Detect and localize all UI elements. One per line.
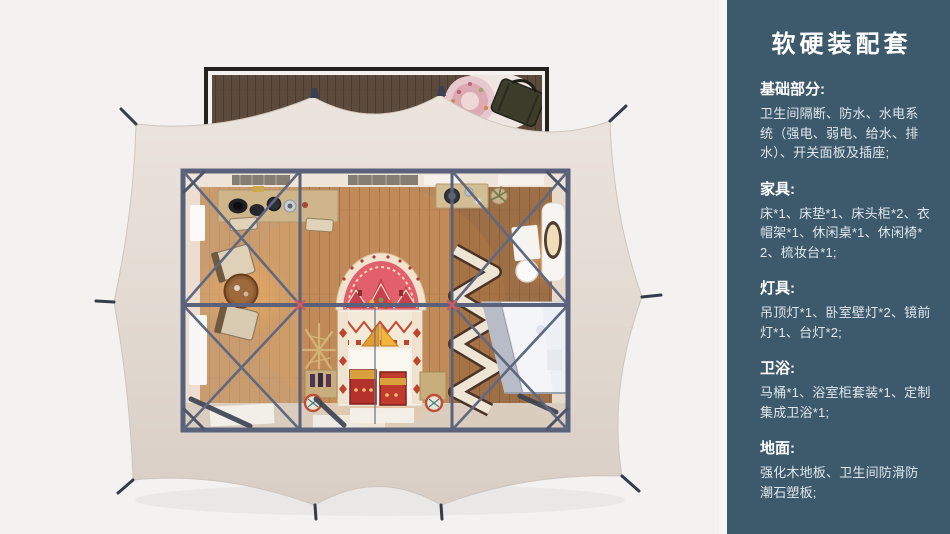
section-body: 吊顶灯*1、卧室壁灯*2、镜前灯*1、台灯*2; — [760, 303, 931, 342]
room — [183, 171, 568, 432]
floorplan-illustration — [0, 0, 727, 534]
vanity-stool — [516, 260, 538, 282]
toilet-icon — [547, 350, 562, 370]
spec-section-flooring: 地面: 强化木地板、卫生间防滑防潮石塑板; — [760, 440, 931, 502]
section-heading: 家具: — [760, 181, 931, 199]
info-panel: 软硬装配套 基础部分: 卫生间隔断、防水、水电系统（强电、弱电、给水、排水）、开… — [727, 0, 950, 534]
wall-panel — [190, 205, 205, 241]
section-body: 马桶*1、浴室柜套装*1、定制集成卫浴*1; — [760, 383, 931, 422]
bed — [336, 253, 426, 423]
section-heading: 基础部分: — [760, 81, 931, 99]
gold-box-icon — [253, 186, 264, 192]
panel-title: 软硬装配套 — [752, 30, 931, 59]
desk-chair — [306, 218, 334, 232]
poster-page: 软硬装配套 基础部分: 卫生间隔断、防水、水电系统（强电、弱电、给水、排水）、开… — [0, 0, 950, 534]
ground-shadow — [135, 484, 625, 516]
section-heading: 灯具: — [760, 280, 931, 298]
section-body: 床*1、床垫*1、床头柜*2、衣帽架*1、休闲桌*1、休闲椅*2、梳妆台*1; — [760, 204, 931, 263]
wall-panel — [189, 315, 207, 385]
spec-section-furniture: 家具: 床*1、床垫*1、床头柜*2、衣帽架*1、休闲桌*1、休闲椅*2、梳妆台… — [760, 181, 931, 263]
spec-section-basics: 基础部分: 卫生间隔断、防水、水电系统（强电、弱电、给水、排水）、开关面板及插座… — [760, 81, 931, 163]
section-body: 强化木地板、卫生间防滑防潮石塑板; — [760, 463, 931, 502]
section-body: 卫生间隔断、防水、水电系统（强电、弱电、给水、排水）、开关面板及插座; — [760, 104, 931, 163]
spec-section-lighting: 灯具: 吊顶灯*1、卧室壁灯*2、镜前灯*1、台灯*2; — [760, 280, 931, 342]
spec-section-bathroom: 卫浴: 马桶*1、浴室柜套装*1、定制集成卫浴*1; — [760, 360, 931, 422]
tea-table — [225, 275, 258, 308]
floorplan-svg — [0, 0, 727, 534]
section-heading: 地面: — [760, 440, 931, 458]
floor-mat — [350, 408, 414, 423]
section-heading: 卫浴: — [760, 360, 931, 378]
panel-edge-strip — [719, 0, 727, 534]
